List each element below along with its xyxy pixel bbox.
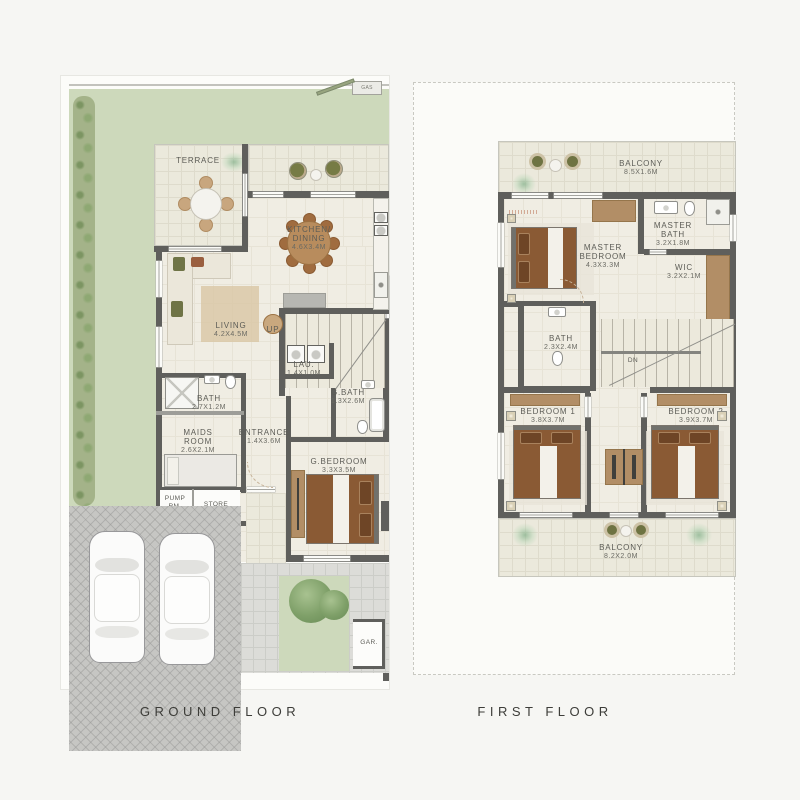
shower <box>706 199 730 225</box>
car-rear-window <box>95 626 139 638</box>
balcony-chair <box>633 522 649 538</box>
bedroom-1-label: BEDROOM 1 3.8X3.7M <box>506 407 590 425</box>
wardrobe <box>592 200 636 222</box>
patio-plant-pot <box>325 160 343 178</box>
nightstand <box>507 294 516 303</box>
vanity-sink <box>654 201 678 214</box>
bathtub <box>369 398 385 432</box>
maids-room-label: MAIDS ROOM 2.6X2.1M <box>164 428 232 455</box>
entrance-label: ENTRANCE 1.4X3.6M <box>229 428 299 446</box>
balcony-table <box>620 525 632 537</box>
wall <box>518 301 524 391</box>
kitchen-cabinet <box>283 293 326 308</box>
garbage-label: GAR. <box>353 639 385 647</box>
balcony-door-opening <box>554 193 602 198</box>
sofa-cushion <box>171 301 183 317</box>
bush <box>319 590 349 620</box>
balcony-chair <box>529 153 546 170</box>
window <box>512 193 548 198</box>
sofa-cushion <box>173 257 185 271</box>
window <box>156 327 162 367</box>
car-roof <box>164 576 210 624</box>
nightstand <box>717 411 727 421</box>
master-bedroom-label: MASTER BEDROOM 4.3X3.3M <box>558 243 648 270</box>
balcony-bottom-label: BALCONY 8.2X2.0M <box>576 543 666 561</box>
sink <box>548 307 566 317</box>
balcony-table <box>549 159 562 172</box>
hedge <box>73 96 95 506</box>
entrance-walkway <box>246 493 286 563</box>
wardrobe <box>510 394 580 406</box>
bed-pillow <box>518 233 530 255</box>
desk-chair <box>612 455 616 479</box>
kitchen-sink <box>374 212 388 223</box>
car-windshield <box>165 560 209 574</box>
bed-headboard <box>652 426 718 430</box>
wall <box>518 301 596 306</box>
wic-label: WIC 3.2X2.1M <box>654 263 714 281</box>
maids-bed-pillow <box>167 457 179 485</box>
window <box>498 223 504 267</box>
window <box>498 433 504 479</box>
desk-chair <box>632 455 636 479</box>
bath-label: BATH 2.3X2.4M <box>529 334 593 352</box>
bath-label: BATH 2.7X1.2M <box>175 394 243 412</box>
car-roof <box>94 574 140 622</box>
balcony-top-label: BALCONY 8.5X1.6M <box>596 159 686 177</box>
bed-sheet <box>540 446 557 498</box>
wardrobe-handle <box>297 478 299 530</box>
stairs-down-label: DN <box>623 357 643 365</box>
laundry-label: LAU. 1.4X1.0M <box>274 360 334 378</box>
bed-pillow <box>520 432 542 444</box>
terrace-label: TERRACE <box>158 156 238 165</box>
sofa-cushion <box>191 257 204 267</box>
bed-sheet <box>333 475 349 543</box>
nightstand <box>506 501 516 511</box>
bed-headboard <box>512 228 516 288</box>
window <box>156 261 162 297</box>
boundary-wall <box>381 501 389 531</box>
nightstand <box>507 214 516 223</box>
bed-pillow <box>551 432 573 444</box>
first-floor-plan: BALCONY 8.5X1.6M MASTER BEDROOM <box>413 82 735 675</box>
master-bath-label: MASTER BATH 3.2X1.8M <box>641 221 705 248</box>
toilet <box>225 375 236 389</box>
bed <box>651 425 719 499</box>
guest-bedroom-label: G.BEDROOM 3.3X3.5M <box>299 457 379 475</box>
terrace-chair <box>199 218 213 232</box>
wardrobe <box>657 394 727 406</box>
stair-rail <box>601 351 701 354</box>
bed-sheet <box>678 446 695 498</box>
toilet <box>684 201 695 216</box>
kitchen-dining-label: KITCHEN/ DINING 4.6X3.4M <box>264 225 354 252</box>
kitchen-sink <box>374 225 388 236</box>
sliding-door <box>169 247 221 251</box>
car-rear-window <box>165 628 209 640</box>
bed-headboard <box>514 426 580 430</box>
bed <box>513 425 581 499</box>
door-opening <box>650 250 666 254</box>
window <box>243 174 247 216</box>
first-floor-caption: FIRST FLOOR <box>413 704 677 719</box>
balcony-plant <box>686 523 712 547</box>
balcony-plant <box>512 523 538 547</box>
window <box>304 556 350 561</box>
floorplan-sheet: { "ground": { "caption": "GROUND FLOOR",… <box>0 0 800 800</box>
bed-pillow <box>658 432 680 444</box>
window <box>311 192 355 197</box>
bed-pillow <box>518 261 530 283</box>
terrace-table <box>190 188 222 220</box>
wall <box>291 437 389 442</box>
car-windshield <box>95 558 139 572</box>
door-opening <box>641 397 647 417</box>
wall <box>498 387 590 393</box>
sink <box>204 375 220 384</box>
terrace-dining-set <box>176 174 236 234</box>
toilet <box>357 420 368 434</box>
balcony-chair <box>564 153 581 170</box>
window <box>520 513 572 517</box>
car <box>159 533 215 665</box>
balcony-door-opening <box>610 513 638 517</box>
desk-divider <box>623 449 625 485</box>
ground-floor-plan: GAS TERRACE <box>60 75 390 690</box>
desk-pair <box>605 449 643 485</box>
gas-meter-box: GAS <box>352 81 382 95</box>
nightstand <box>506 411 516 421</box>
bed-pillow <box>689 432 711 444</box>
sink <box>361 380 375 389</box>
window <box>730 215 736 241</box>
stairs-up-label: UP <box>258 325 288 334</box>
ground-floor-caption: GROUND FLOOR <box>60 704 380 719</box>
guest-bed <box>306 474 379 544</box>
maids-bed <box>164 454 237 487</box>
patio-plant-pot <box>289 162 307 180</box>
patio-side-table <box>310 169 322 181</box>
gas-label: GAS <box>361 85 372 91</box>
wall <box>650 387 736 393</box>
bed-pillow <box>359 513 372 537</box>
stove <box>374 272 388 298</box>
window <box>666 513 718 517</box>
toilet <box>552 351 563 366</box>
bed-pillow <box>359 481 372 505</box>
car <box>89 531 145 663</box>
nightstand <box>717 501 727 511</box>
balcony-chair <box>604 522 620 538</box>
bed-headboard <box>374 475 378 543</box>
terrace-chair <box>220 197 234 211</box>
window <box>253 192 283 197</box>
